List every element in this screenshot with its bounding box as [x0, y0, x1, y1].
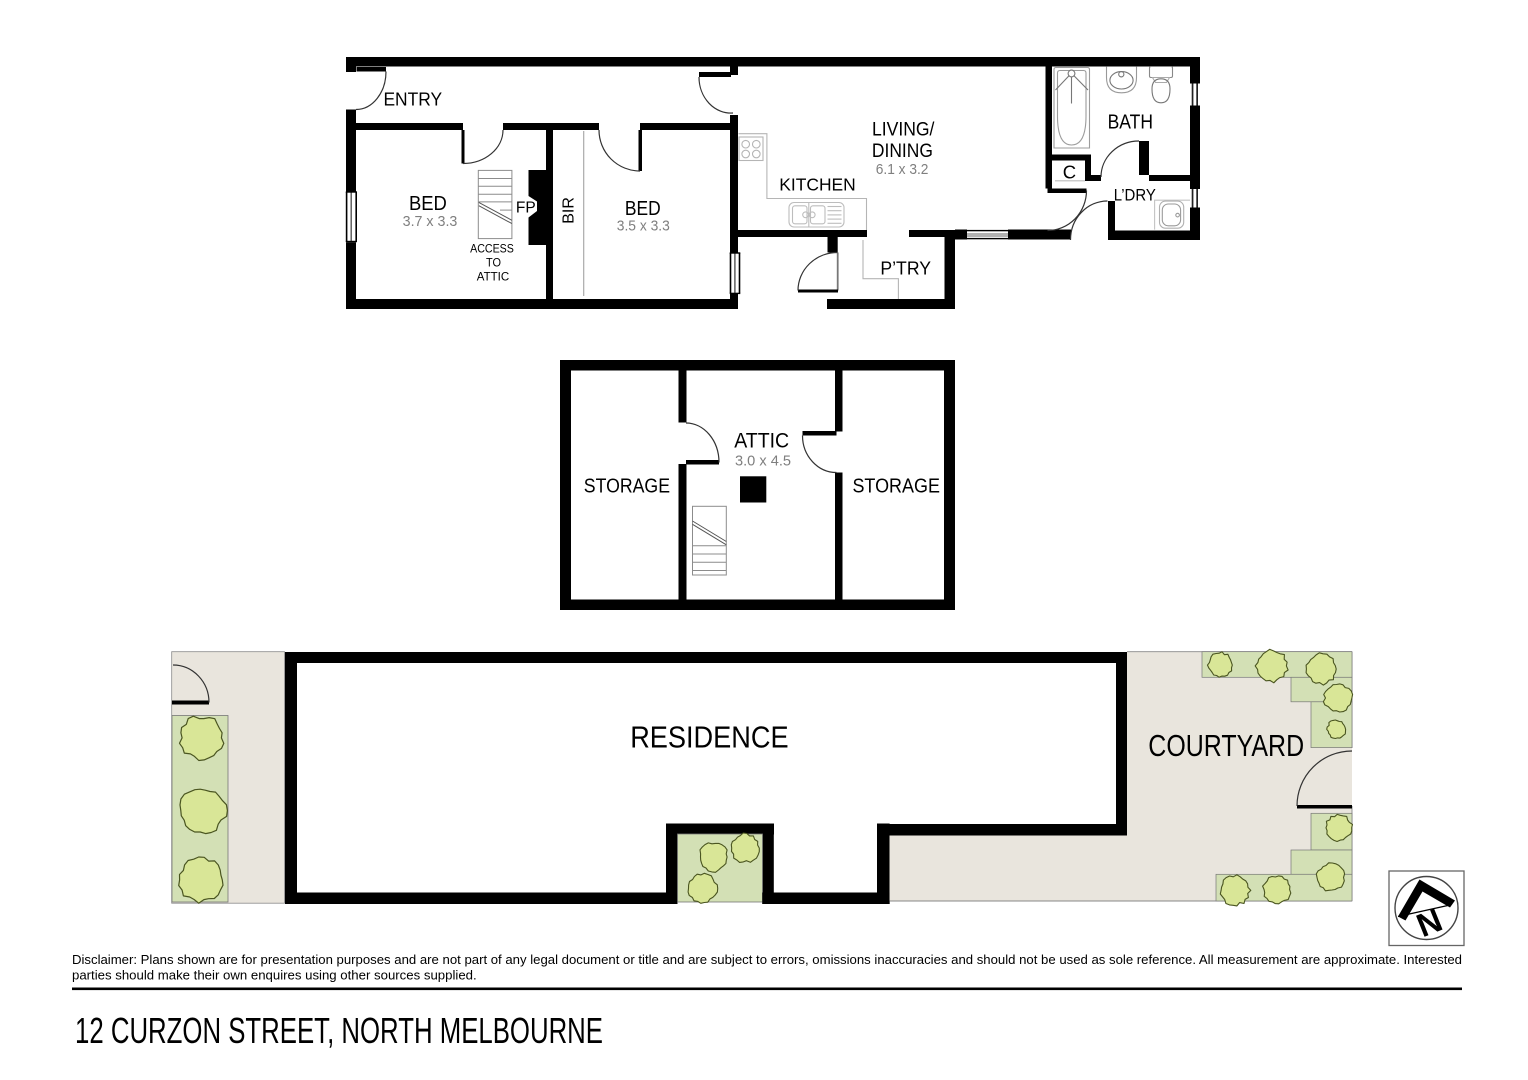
svg-text:STORAGE: STORAGE: [584, 475, 670, 498]
svg-text:RESIDENCE: RESIDENCE: [630, 720, 788, 755]
svg-text:COURTYARD: COURTYARD: [1148, 728, 1304, 763]
svg-text:ATTIC: ATTIC: [734, 430, 789, 453]
svg-text:BIR: BIR: [560, 197, 577, 224]
svg-text:DINING: DINING: [872, 140, 933, 162]
svg-text:KITCHEN: KITCHEN: [779, 175, 856, 195]
svg-text:TO: TO: [486, 256, 501, 270]
svg-text:3.0 x 4.5: 3.0 x 4.5: [735, 453, 791, 470]
svg-text:parties should make their own: parties should make their own enquires u…: [72, 967, 477, 982]
svg-text:Disclaimer: Plans shown are fo: Disclaimer: Plans shown are for presenta…: [72, 952, 1462, 967]
svg-text:BATH: BATH: [1108, 112, 1153, 134]
svg-text:12 CURZON STREET, NORTH MELBOU: 12 CURZON STREET, NORTH MELBOURNE: [75, 1010, 603, 1051]
svg-text:LIVING/: LIVING/: [872, 118, 935, 140]
svg-text:P’TRY: P’TRY: [880, 257, 931, 278]
svg-text:ENTRY: ENTRY: [383, 89, 442, 110]
svg-text:3.5 x 3.3: 3.5 x 3.3: [617, 218, 670, 235]
svg-text:3.7 x 3.3: 3.7 x 3.3: [403, 213, 458, 230]
svg-text:STORAGE: STORAGE: [852, 475, 940, 498]
svg-text:L’DRY: L’DRY: [1114, 186, 1156, 204]
svg-text:C: C: [1063, 162, 1076, 183]
svg-text:BED: BED: [409, 193, 447, 215]
svg-text:FP: FP: [516, 200, 536, 217]
svg-text:6.1 x 3.2: 6.1 x 3.2: [876, 161, 929, 178]
svg-text:ATTIC: ATTIC: [477, 270, 510, 284]
svg-text:ACCESS: ACCESS: [470, 242, 514, 256]
